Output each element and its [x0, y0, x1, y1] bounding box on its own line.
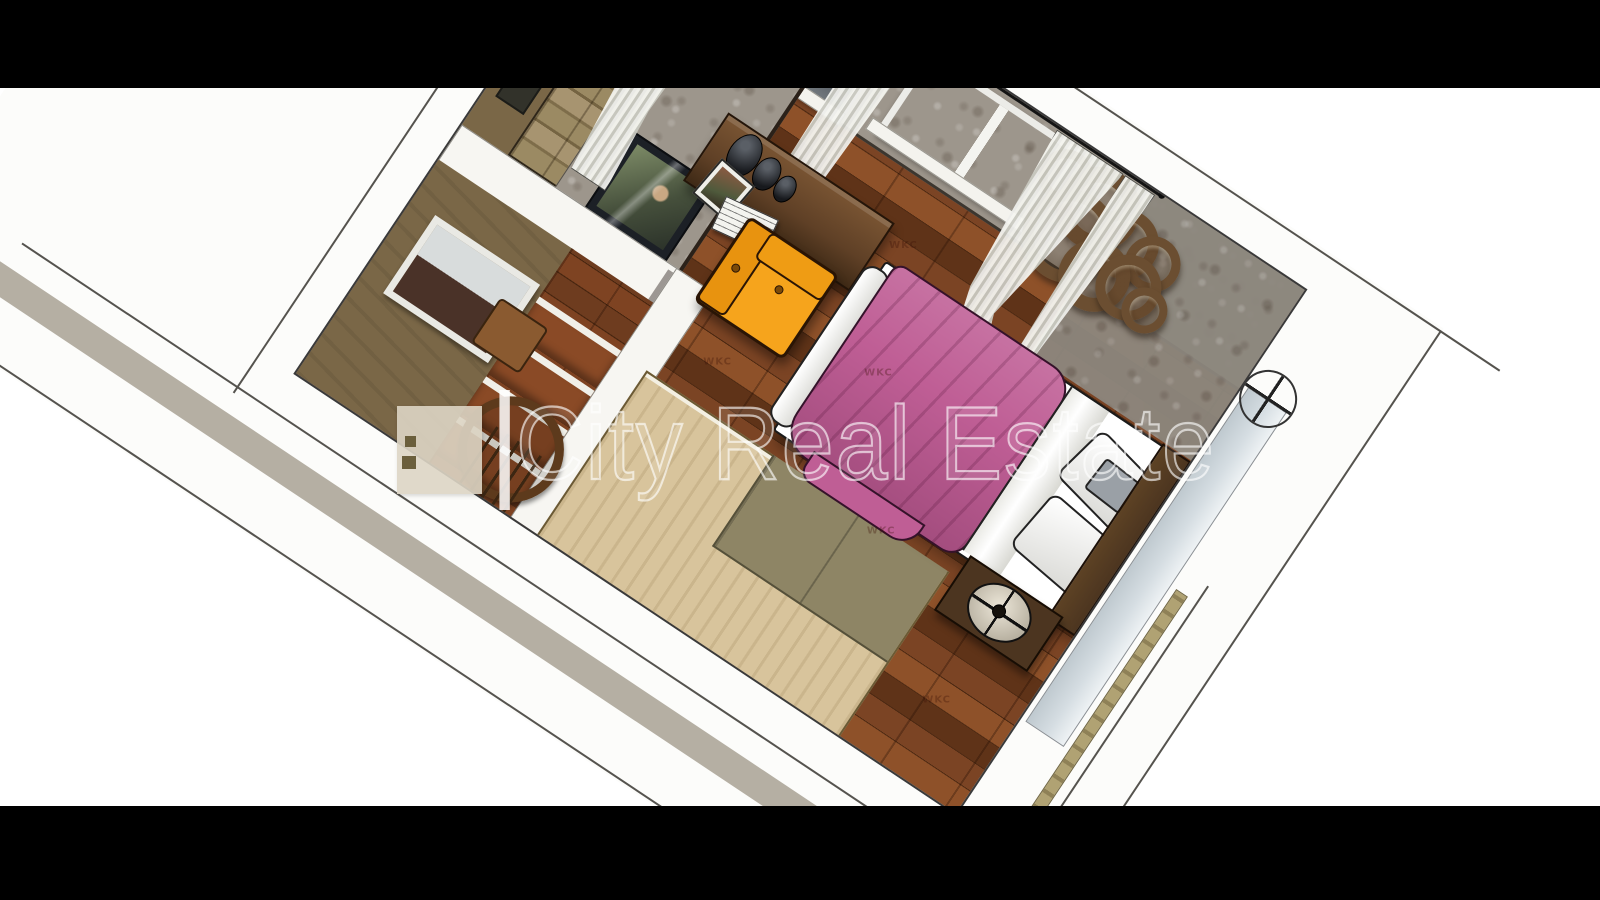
letterbox-top [0, 0, 1600, 88]
floor-stamp: WKC [922, 695, 951, 706]
floor-stamp: WKC [703, 356, 732, 367]
floor-stamp: WKC [864, 367, 893, 378]
real-estate-render: WKC WKC WKC WKC WKC | City Real Estate [0, 0, 1600, 900]
letterbox-bottom [0, 806, 1600, 900]
floor-stamp: WKC [867, 525, 896, 536]
render-canvas: WKC WKC WKC WKC WKC | City Real Estate [0, 88, 1600, 806]
cushion-button [773, 284, 785, 296]
floor-stamp: WKC [889, 240, 918, 251]
